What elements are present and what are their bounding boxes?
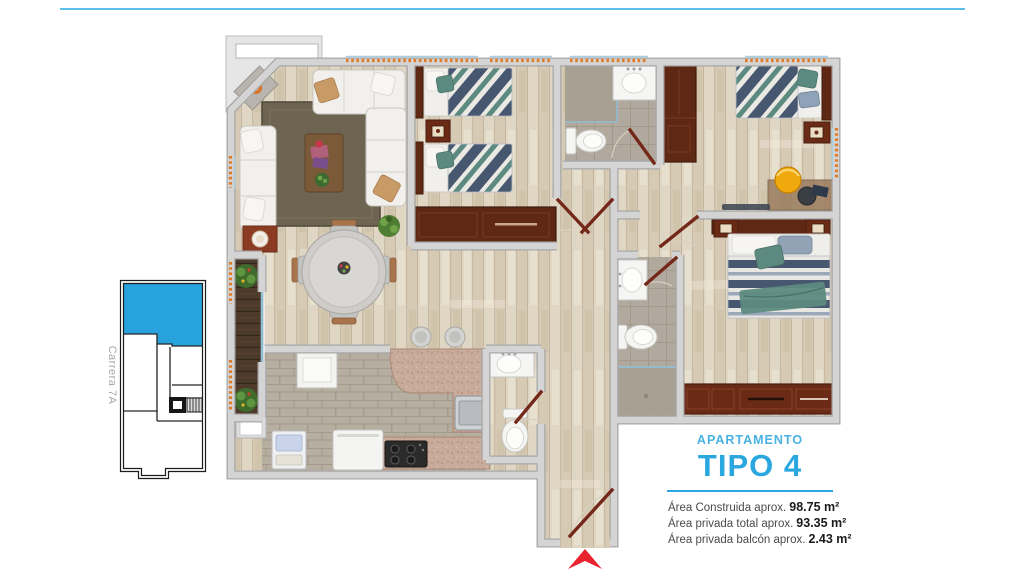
coffee-table <box>305 134 343 192</box>
street-label: Carrera 7A <box>106 346 118 405</box>
area-balcony-line: Área privada balcón aprox.2.43 m² <box>660 532 840 548</box>
bath-top-toilet <box>566 128 606 154</box>
entrance-opening <box>560 537 610 548</box>
fridge <box>333 430 383 470</box>
area-built-value: 98.75 m² <box>789 500 839 514</box>
master-wardrobe <box>682 384 836 414</box>
shower-top <box>565 64 617 122</box>
apartment-kicker: APARTAMENTO <box>660 433 840 447</box>
area-balcony-value: 2.43 m² <box>808 532 851 546</box>
area-private-value: 93.35 m² <box>796 516 846 530</box>
shower-master <box>616 367 678 418</box>
key-plan: Carrera 7A <box>106 282 204 477</box>
balcony-plant-top <box>234 264 258 288</box>
common-window <box>236 44 318 58</box>
floorplan-canvas: Carrera 7A <box>0 0 1024 580</box>
dining-table <box>302 230 386 314</box>
bed2-dresser <box>412 207 556 243</box>
bed3-single <box>736 64 832 120</box>
balcony-plant-bottom <box>234 388 258 412</box>
area-private-label: Área privada total aprox. <box>668 518 793 530</box>
stove <box>385 441 427 467</box>
sofa-left <box>240 126 276 230</box>
area-private-line: Área privada total aprox.93.35 m² <box>660 516 840 532</box>
key-plan-highlight <box>123 283 203 346</box>
living-room <box>234 66 406 252</box>
balcony-slider <box>262 292 264 362</box>
master-bed <box>728 234 830 318</box>
nightstand-frame <box>426 120 450 142</box>
area-built-label: Área Construida aprox. <box>668 502 786 514</box>
page: Carrera 7A <box>0 0 1024 580</box>
title-block: APARTAMENTO TIPO 4 Área Construida aprox… <box>660 433 840 548</box>
entrance-arrow <box>568 549 602 569</box>
kitchen-cabinet <box>297 352 337 388</box>
stairs-icon <box>169 397 204 413</box>
title-underline <box>667 490 833 492</box>
area-balcony-label: Área privada balcón aprox. <box>668 534 805 546</box>
bed2-single-1 <box>424 68 512 116</box>
bed3-nightstand <box>804 122 830 143</box>
bed3-closet <box>662 65 696 162</box>
bath-top-vanity <box>613 66 658 100</box>
area-built-line: Área Construida aprox.98.75 m² <box>660 500 840 516</box>
bath-master-vanity <box>617 260 647 300</box>
bath-social-toilet <box>502 409 528 452</box>
bed2-single-2 <box>424 144 512 192</box>
plant-living <box>378 215 400 237</box>
bath-social-vanity <box>488 351 534 377</box>
apartment-title: TIPO 4 <box>660 448 840 484</box>
side-table <box>243 226 277 252</box>
washer <box>272 431 306 469</box>
bath-master-toilet <box>617 325 657 349</box>
